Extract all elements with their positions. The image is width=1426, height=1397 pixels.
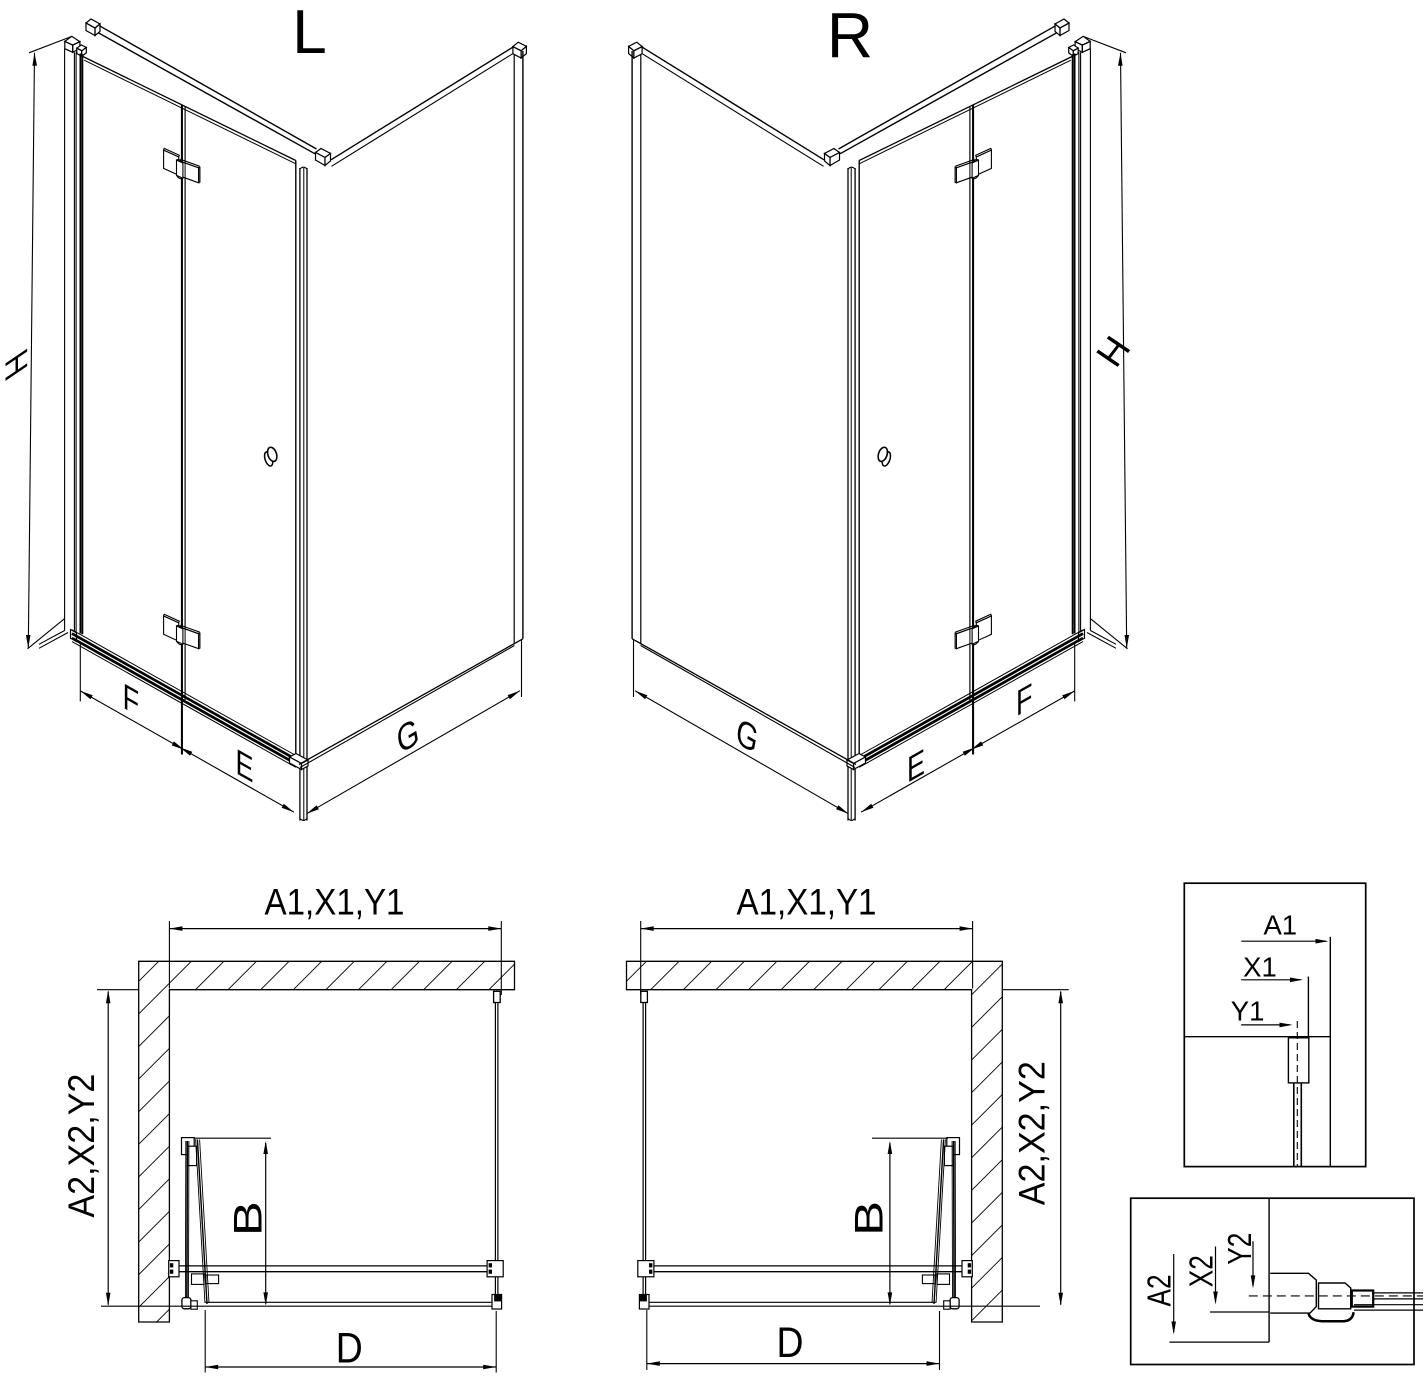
svg-text:R: R (827, 0, 873, 71)
svg-text:A2: A2 (1140, 1275, 1177, 1307)
svg-text:D: D (777, 1319, 804, 1367)
svg-text:B: B (847, 1201, 891, 1236)
svg-text:D: D (336, 1324, 363, 1372)
svg-text:X2: X2 (1182, 1255, 1219, 1287)
svg-text:A1,X1,Y1: A1,X1,Y1 (737, 882, 877, 923)
svg-text:L: L (292, 0, 326, 67)
svg-text:X1: X1 (1243, 952, 1277, 983)
svg-text:A2,X2,Y2: A2,X2,Y2 (61, 1074, 102, 1218)
svg-text:Y1: Y1 (1231, 996, 1265, 1027)
svg-text:B: B (225, 1201, 269, 1236)
svg-text:A1: A1 (1263, 910, 1297, 941)
svg-text:A1,X1,Y1: A1,X1,Y1 (265, 882, 405, 923)
svg-text:A2,X2,Y2: A2,X2,Y2 (1011, 1061, 1052, 1205)
svg-text:Y2: Y2 (1221, 1233, 1258, 1265)
